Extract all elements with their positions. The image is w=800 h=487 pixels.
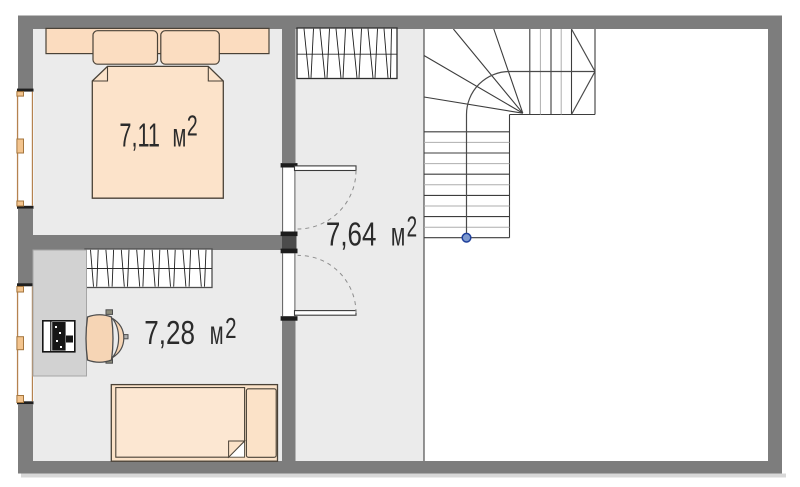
- svg-text:м: м: [391, 216, 405, 253]
- svg-text:7,11: 7,11: [119, 116, 160, 153]
- svg-text:м: м: [210, 314, 224, 351]
- svg-text:7,64: 7,64: [326, 216, 377, 253]
- svg-text:2: 2: [225, 313, 236, 345]
- svg-text:м: м: [173, 116, 187, 153]
- svg-text:7,28: 7,28: [144, 314, 195, 351]
- svg-text:2: 2: [407, 212, 418, 244]
- svg-text:2: 2: [187, 111, 198, 143]
